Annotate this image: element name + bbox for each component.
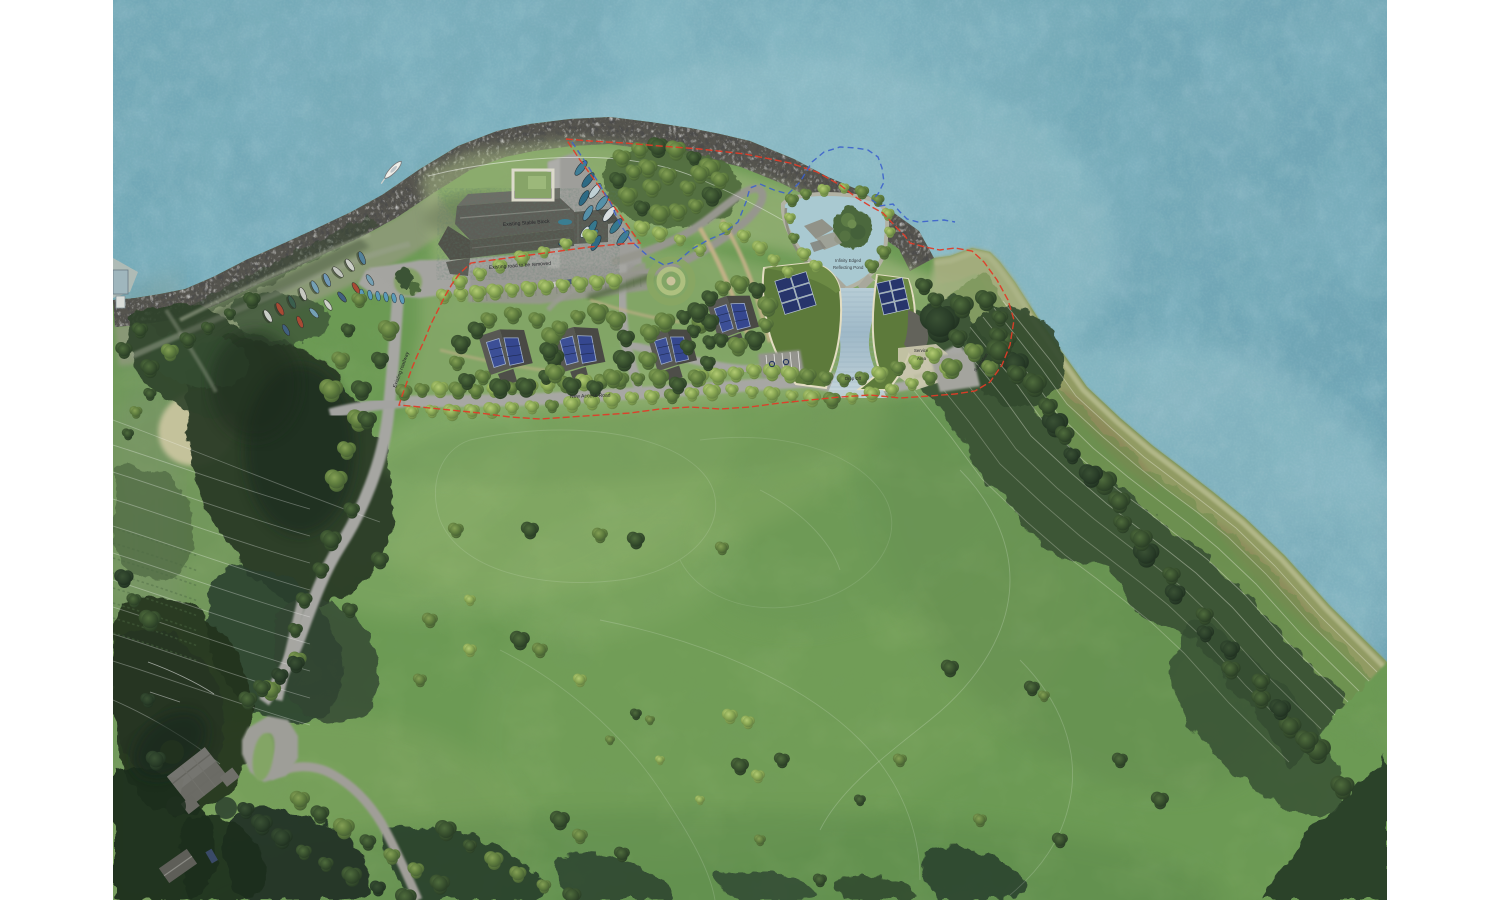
svg-text:Area: Area [917,356,927,361]
svg-text:Service: Service [914,348,929,353]
svg-text:Infinity Edged: Infinity Edged [835,258,862,263]
svg-text:Reflecting Pond: Reflecting Pond [833,265,864,270]
svg-text:Drop Off: Drop Off [845,376,862,381]
